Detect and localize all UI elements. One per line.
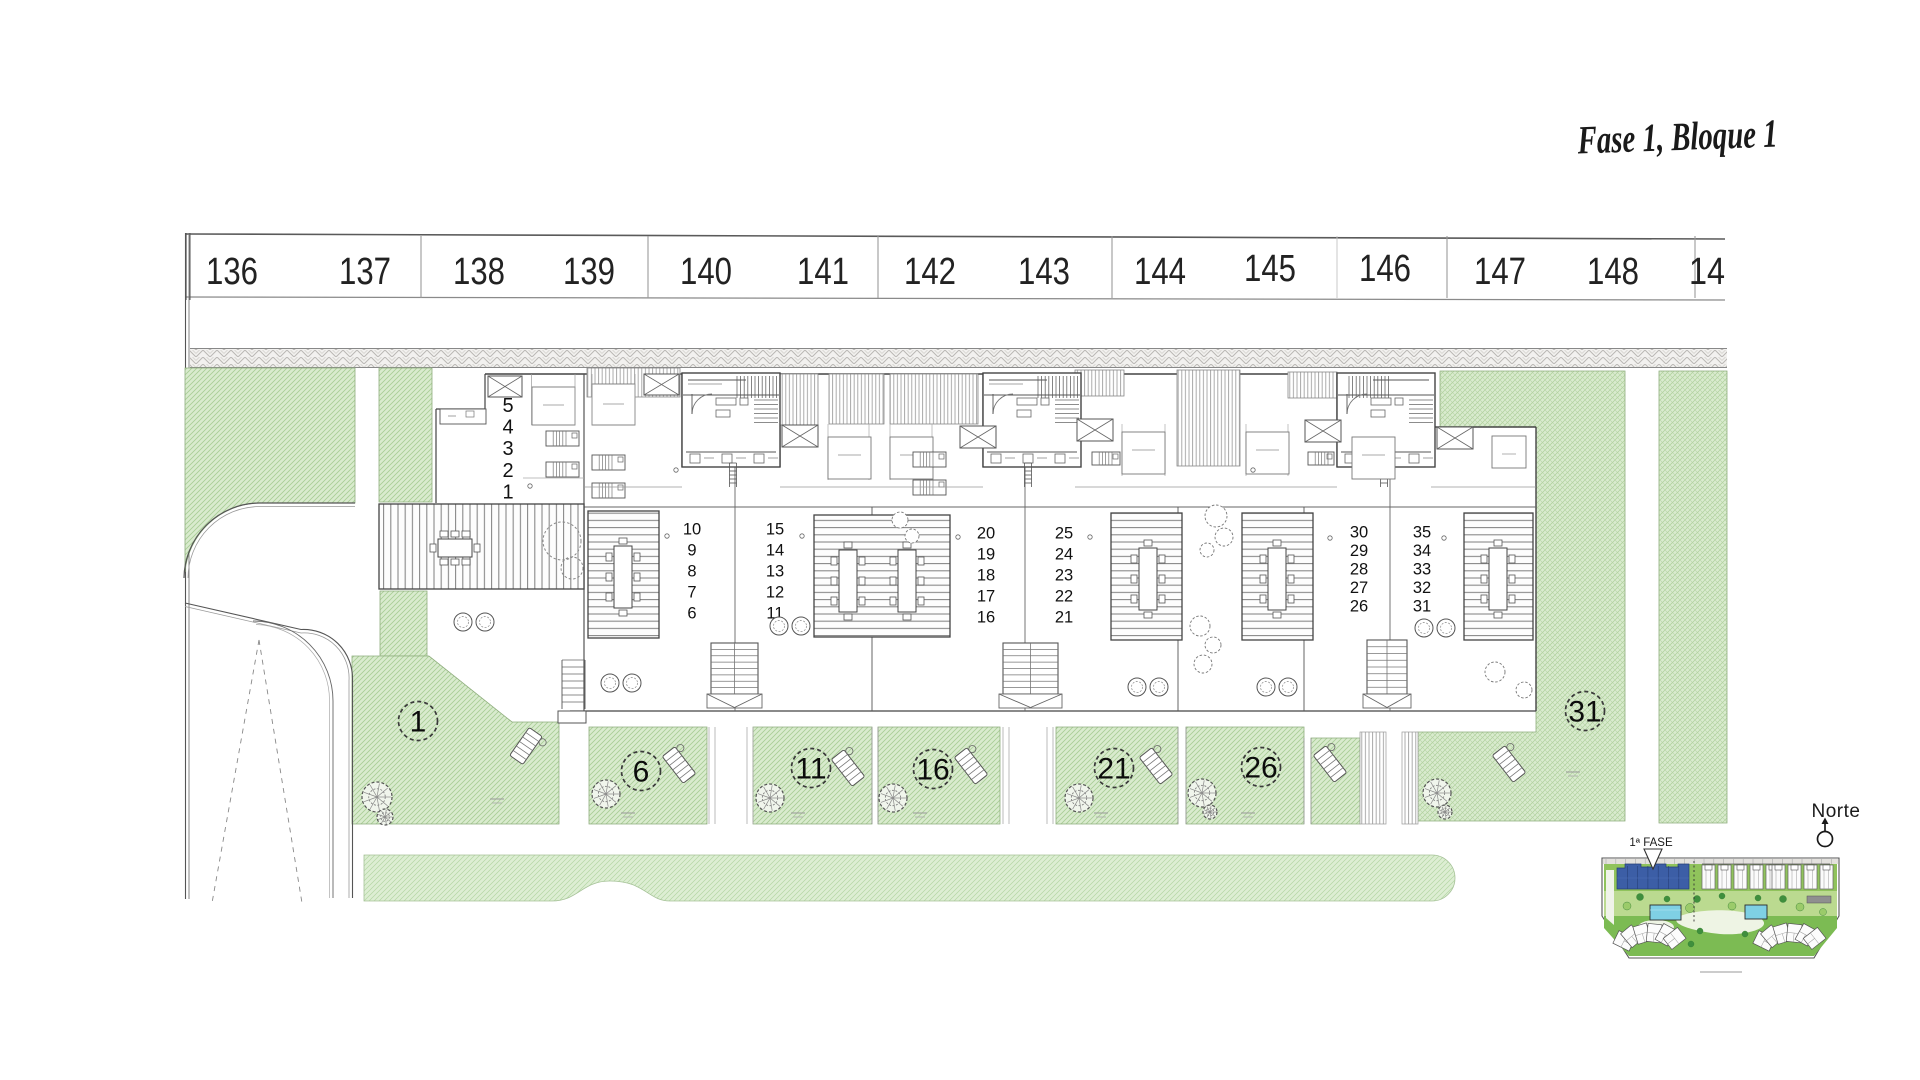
svg-text:5: 5 (502, 395, 513, 417)
svg-text:26: 26 (1350, 598, 1368, 616)
svg-text:137: 137 (339, 251, 391, 293)
svg-text:144: 144 (1134, 251, 1186, 293)
svg-text:10: 10 (683, 521, 701, 539)
svg-text:31: 31 (1413, 598, 1431, 616)
svg-text:140: 140 (680, 251, 732, 293)
svg-text:18: 18 (977, 567, 995, 585)
svg-text:147: 147 (1474, 251, 1526, 293)
svg-text:26: 26 (1244, 752, 1277, 785)
svg-text:1ª FASE: 1ª FASE (1629, 837, 1673, 849)
svg-text:20: 20 (977, 525, 995, 543)
svg-text:2: 2 (502, 460, 513, 482)
svg-text:19: 19 (977, 546, 995, 564)
svg-text:28: 28 (1350, 561, 1368, 579)
svg-text:Norte: Norte (1812, 801, 1861, 822)
svg-text:21: 21 (1097, 753, 1130, 786)
svg-text:145: 145 (1244, 248, 1296, 290)
svg-text:11: 11 (795, 753, 826, 786)
svg-text:31: 31 (1568, 696, 1601, 729)
svg-text:21: 21 (1055, 609, 1073, 627)
svg-text:1: 1 (410, 706, 427, 739)
svg-text:30: 30 (1350, 524, 1368, 542)
svg-text:141: 141 (797, 251, 849, 293)
svg-text:7: 7 (687, 584, 696, 602)
svg-text:23: 23 (1055, 567, 1073, 585)
svg-text:33: 33 (1413, 561, 1431, 579)
svg-text:35: 35 (1413, 524, 1431, 542)
svg-text:136: 136 (206, 251, 258, 293)
svg-text:8: 8 (687, 563, 696, 581)
svg-text:6: 6 (687, 605, 696, 623)
svg-text:148: 148 (1587, 251, 1639, 293)
svg-text:12: 12 (766, 584, 784, 602)
svg-text:Fase 1, Bloque 1: Fase 1, Bloque 1 (1576, 111, 1778, 163)
svg-text:29: 29 (1350, 542, 1368, 560)
svg-text:16: 16 (977, 609, 995, 627)
svg-text:1: 1 (502, 481, 513, 503)
svg-text:16: 16 (916, 754, 949, 787)
svg-text:9: 9 (687, 542, 696, 560)
svg-text:25: 25 (1055, 525, 1073, 543)
svg-text:142: 142 (904, 251, 956, 293)
svg-text:4: 4 (502, 417, 513, 439)
svg-text:17: 17 (977, 588, 995, 606)
svg-text:32: 32 (1413, 579, 1431, 597)
svg-text:139: 139 (563, 251, 615, 293)
svg-text:6: 6 (633, 756, 650, 789)
svg-text:34: 34 (1413, 542, 1431, 560)
svg-text:13: 13 (766, 563, 784, 581)
svg-text:14: 14 (1689, 251, 1725, 293)
svg-text:24: 24 (1055, 546, 1073, 564)
svg-text:15: 15 (766, 521, 784, 539)
svg-text:14: 14 (766, 542, 784, 560)
svg-text:27: 27 (1350, 579, 1368, 597)
svg-text:138: 138 (453, 251, 505, 293)
svg-text:3: 3 (502, 438, 513, 460)
svg-text:146: 146 (1359, 248, 1411, 290)
svg-text:22: 22 (1055, 588, 1073, 606)
svg-text:143: 143 (1018, 251, 1070, 293)
